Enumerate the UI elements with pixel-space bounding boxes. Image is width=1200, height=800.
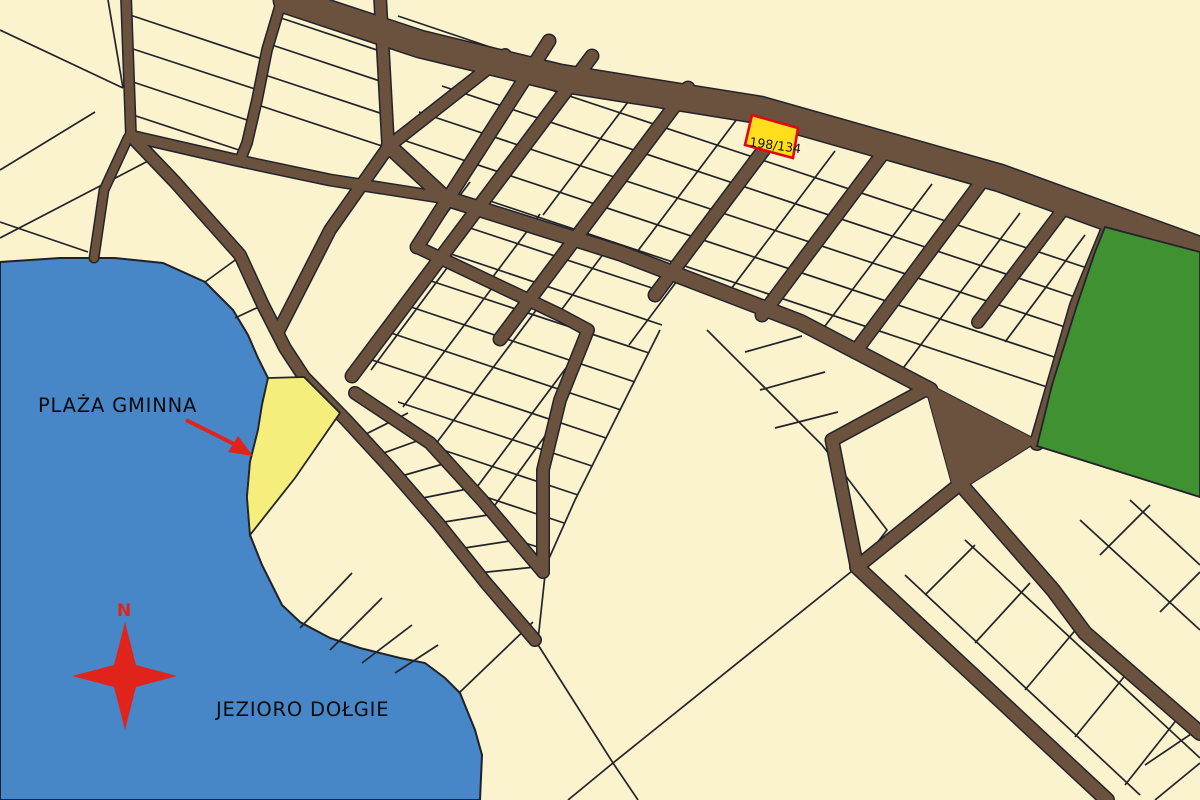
compass-north-label: N — [117, 601, 131, 621]
lake-label: JEZIORO DOŁGIE — [214, 698, 389, 721]
map-canvas[interactable]: 198/134 PLAŻA GMINNA JEZIORO DOŁGIE N — [0, 0, 1200, 800]
beach-label: PLAŻA GMINNA — [38, 394, 197, 417]
cadastral-map: 198/134 PLAŻA GMINNA JEZIORO DOŁGIE N — [0, 0, 1200, 800]
